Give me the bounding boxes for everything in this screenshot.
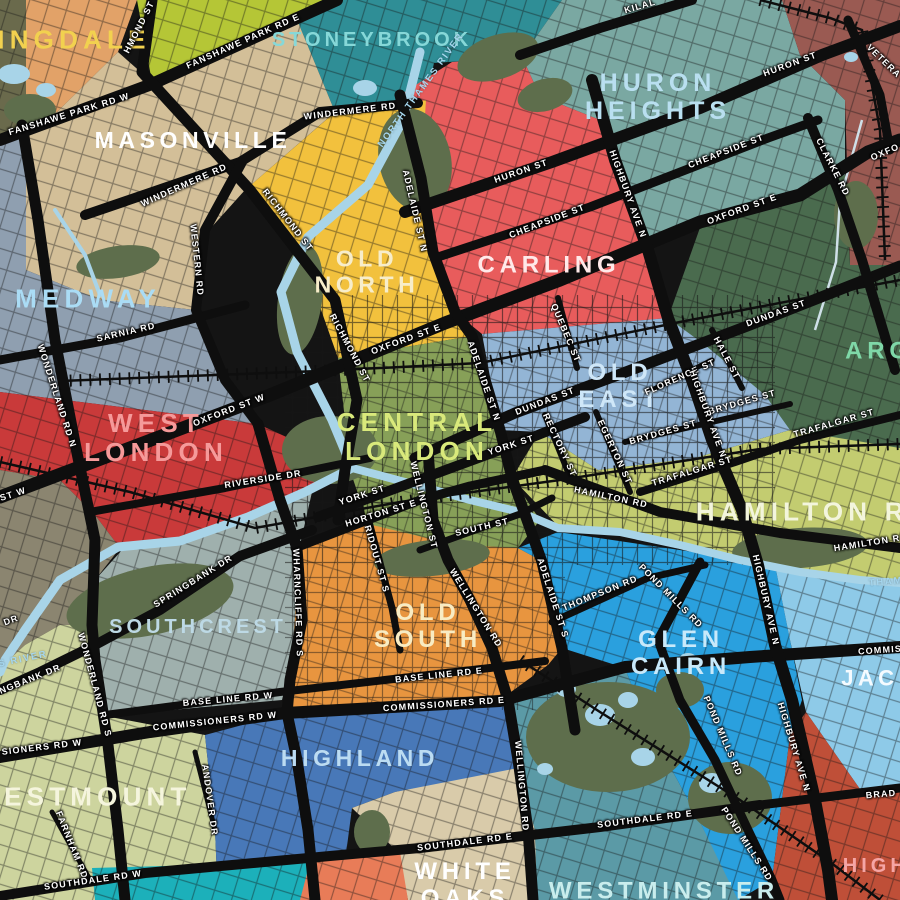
street-label: CLARKE RD xyxy=(814,136,852,197)
street-label: TRAFALGAR ST xyxy=(651,454,734,488)
neighbourhood-label-line: OLD xyxy=(578,360,661,387)
neighbourhood-label-white-oaks: WHITEOAKS xyxy=(414,859,515,900)
neighbourhood-label-old-north: OLDNORTH xyxy=(315,246,420,298)
street-label: WESTERN RD xyxy=(188,224,205,297)
street-label: HALE ST xyxy=(712,335,743,381)
street-label: RICHMOND ST xyxy=(328,312,373,384)
neighbourhood-label-line: HIGHB xyxy=(843,855,900,877)
neighbourhood-label-line: WESTMOUNT xyxy=(0,782,192,811)
neighbourhood-label-westmount: WESTMOUNT xyxy=(0,782,192,811)
street-label: DUNDAS ST xyxy=(745,298,808,329)
street-label: HIGHBURY AVE N xyxy=(687,369,728,460)
street-label: ST W xyxy=(0,485,27,503)
neighbourhood-label-line: CARLING xyxy=(478,253,621,280)
street-label: ADELAIDE ST N xyxy=(401,169,430,253)
neighbourhood-label-westminster: WESTMINSTER xyxy=(549,879,779,900)
neighbourhood-label-highland: HIGHLAND xyxy=(281,746,439,772)
street-label: CHEAPSIDE ST xyxy=(687,132,766,170)
neighbourhood-label-line: SOUTHCREST xyxy=(109,616,287,638)
street-label: WONDERLAND RD N xyxy=(36,343,79,449)
street-label: COMMISSIONERS RD E xyxy=(383,695,506,714)
neighbourhood-label-line: OLD xyxy=(374,600,482,627)
neighbourhood-label-line: NORTH xyxy=(315,272,420,298)
neighbourhood-label-line: ARG xyxy=(845,339,900,366)
neighbourhood-label-line: HURON xyxy=(585,69,731,97)
neighbourhood-label-jackson: JACK xyxy=(841,667,900,692)
street-label: HIGHBURY AVE N xyxy=(607,149,648,240)
neighbourhood-label-line: GLEN xyxy=(631,627,731,654)
neighbourhood-label-line: OAKS xyxy=(414,886,515,900)
street-label: QUEBEC ST xyxy=(549,302,583,364)
neighbourhood-label-highbury: HIGHB xyxy=(843,855,900,877)
neighbourhood-label-glen-cairn: GLENCAIRN xyxy=(631,627,731,681)
street-label: DUNDAS ST xyxy=(514,385,576,417)
street-label: SOUTHDALE RD E xyxy=(597,808,694,830)
street-label: WINDERMERE RD xyxy=(303,100,397,121)
street-label: WONDERLAND RD S xyxy=(76,632,113,738)
neighbourhood-label-line: HIGHLAND xyxy=(281,746,439,772)
neighbourhood-label-line: HAMILTON RO xyxy=(696,497,900,526)
street-label: HAMILTON RD xyxy=(573,484,648,509)
water-label: THAM xyxy=(868,575,900,589)
neighbourhood-map: NINGDALEMASONVILLESTONEYBROOKHURONHEIGHT… xyxy=(0,0,900,900)
street-label: THOMPSON RD xyxy=(561,573,639,612)
street-label: DR xyxy=(2,613,20,628)
street-label: BASE LINE RD W xyxy=(182,690,273,708)
neighbourhood-label-line: MEDWAY xyxy=(15,284,161,313)
neighbourhood-label-line: OLD xyxy=(315,246,420,272)
map-labels: NINGDALEMASONVILLESTONEYBROOKHURONHEIGHT… xyxy=(0,0,900,900)
neighbourhood-label-huron-heights: HURONHEIGHTS xyxy=(585,69,731,125)
street-label: POND MILLS RD xyxy=(702,694,745,777)
street-label: RIVERSIDE DR xyxy=(224,468,303,490)
street-label: CHEAPSIDE ST xyxy=(508,202,587,240)
street-label: KILAL xyxy=(623,0,657,15)
street-label: SIONERS RD W xyxy=(1,737,83,757)
neighbourhood-label-masonville: MASONVILLE xyxy=(95,128,292,154)
street-label: POND MILLS RD xyxy=(637,562,705,630)
street-label: SOUTHDALE RD W xyxy=(43,868,142,892)
street-label: WHARNCLIFFE RD S xyxy=(291,548,305,657)
street-label: YORK ST xyxy=(338,483,387,507)
neighbourhood-label-line: CENTRAL xyxy=(337,408,498,437)
street-label: VETERA xyxy=(865,42,900,79)
street-label: BRYDGES ST xyxy=(707,388,777,417)
street-label: OXFORD ST E xyxy=(370,322,443,357)
street-label: EGERTON ST xyxy=(596,418,635,486)
street-label: RECTORY ST xyxy=(541,412,579,479)
street-label: ANDOVER DR xyxy=(200,764,220,837)
neighbourhood-label-line: CAIRN xyxy=(631,654,731,681)
street-label: COMMISSIONERS RD W xyxy=(152,709,277,732)
neighbourhood-label-central-london: CENTRALLONDON xyxy=(337,408,498,466)
street-label: WINDERMERE RD xyxy=(139,161,228,208)
street-label: BASE LINE RD E xyxy=(395,665,484,684)
street-label: HAMILTON R xyxy=(833,533,900,553)
neighbourhood-label-hamilton-road: HAMILTON RO xyxy=(696,497,900,526)
neighbourhood-label-old-south: OLDSOUTH xyxy=(374,600,482,654)
neighbourhood-label-line: MASONVILLE xyxy=(95,128,292,154)
neighbourhood-label-line: HEIGHTS xyxy=(585,97,731,125)
street-label: HURON ST xyxy=(493,157,550,185)
street-label: WELLINGTON RD xyxy=(513,740,531,832)
street-label: SARNIA RD xyxy=(96,320,157,343)
street-label: OXFO xyxy=(869,141,900,162)
street-label: HIGHBURY AVE N xyxy=(776,701,813,793)
street-label: SOUTH ST xyxy=(454,516,510,538)
street-label: RICHMOND ST xyxy=(261,187,316,253)
street-label: POND MILLS RD xyxy=(719,805,774,883)
street-label: OXFORD ST E xyxy=(706,192,779,227)
neighbourhood-label-carling: CARLING xyxy=(478,253,621,280)
neighbourhood-label-line: JACK xyxy=(841,667,900,692)
street-label: SOUTHDALE RD E xyxy=(417,831,514,853)
street-label: HURON ST xyxy=(762,50,818,79)
neighbourhood-label-line: SOUTH xyxy=(374,627,482,654)
neighbourhood-label-medway: MEDWAY xyxy=(15,284,161,313)
street-label: ADELAIDE ST S xyxy=(535,557,570,640)
street-label: BRAD xyxy=(865,788,896,801)
neighbourhood-label-stoneybrook: STONEYBROOK xyxy=(272,29,472,51)
neighbourhood-label-line: STONEYBROOK xyxy=(272,29,472,51)
street-label: FARNHAM RD xyxy=(54,810,90,881)
neighbourhood-label-argyle: ARG xyxy=(845,339,900,366)
street-label: SPRINGBANK DR xyxy=(152,553,235,610)
street-label: RIDOUT ST S xyxy=(363,524,392,594)
neighbourhood-label-line: WHITE xyxy=(414,859,515,886)
neighbourhood-label-line: LONDON xyxy=(84,438,228,467)
neighbourhood-label-line: WESTMINSTER xyxy=(549,879,779,900)
street-label: COMMIS xyxy=(858,643,900,656)
street-label: BRYDGES ST xyxy=(628,418,698,447)
neighbourhood-label-southcrest: SOUTHCREST xyxy=(109,616,287,638)
street-label: HIGHBURY AVE N xyxy=(751,554,782,647)
street-label: TRAFALGAR ST xyxy=(792,407,875,440)
